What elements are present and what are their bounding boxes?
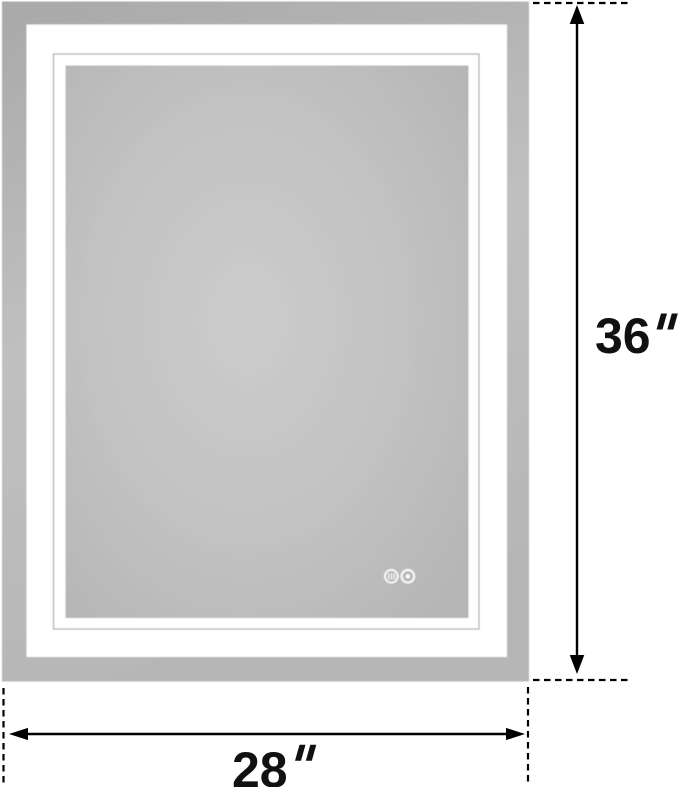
svg-text:28: 28 (232, 742, 288, 787)
svg-text:36: 36 (595, 308, 651, 364)
